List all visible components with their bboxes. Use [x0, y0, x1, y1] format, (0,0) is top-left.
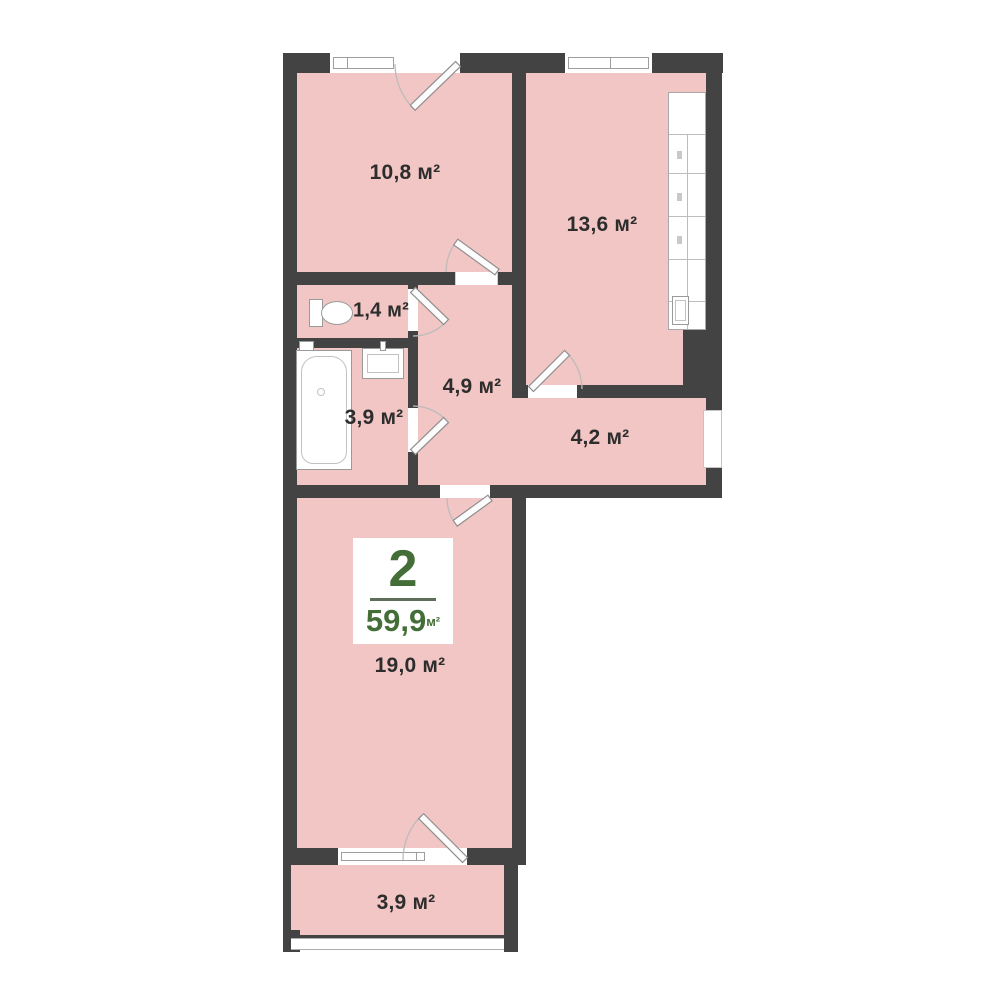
door-swing-arc [446, 242, 456, 272]
door-leaf [419, 814, 468, 863]
room-area-label: 4,2 м² [571, 426, 630, 450]
room-area-label: 13,6 м² [567, 213, 638, 237]
door-swing-overlay [0, 0, 1000, 1000]
unit-info-badge: 2 59,9 м² [353, 538, 453, 644]
door-swing-arc [567, 353, 582, 389]
door-leaf [411, 287, 449, 324]
unit-total-area-number: 59,9 [366, 605, 426, 636]
door-leaf [411, 418, 449, 455]
unit-total-area-unit: м² [426, 615, 440, 628]
door-leaf [410, 61, 460, 110]
door-leaf [453, 495, 492, 526]
room-area-label: 3,9 м² [345, 406, 404, 430]
door-swing-arc [413, 406, 446, 420]
door-leaf [529, 350, 570, 391]
unit-room-count: 2 [389, 546, 418, 593]
room-area-label: 1,4 м² [353, 300, 409, 323]
badge-divider [370, 598, 436, 601]
floorplan-canvas: 10,8 м² 13,6 м² 1,4 м² 4,9 м² 3,9 м² 4,2… [0, 0, 1000, 1000]
unit-total-area: 59,9 м² [366, 605, 440, 636]
door-leaf [454, 239, 499, 275]
room-area-label: 4,9 м² [443, 375, 502, 399]
door-swing-arc [413, 322, 446, 336]
door-swing-arc [403, 816, 421, 860]
room-area-label: 3,9 м² [377, 891, 436, 915]
room-area-label: 19,0 м² [375, 654, 446, 678]
door-swing-arc [395, 64, 413, 108]
room-area-label: 10,8 м² [370, 161, 441, 185]
